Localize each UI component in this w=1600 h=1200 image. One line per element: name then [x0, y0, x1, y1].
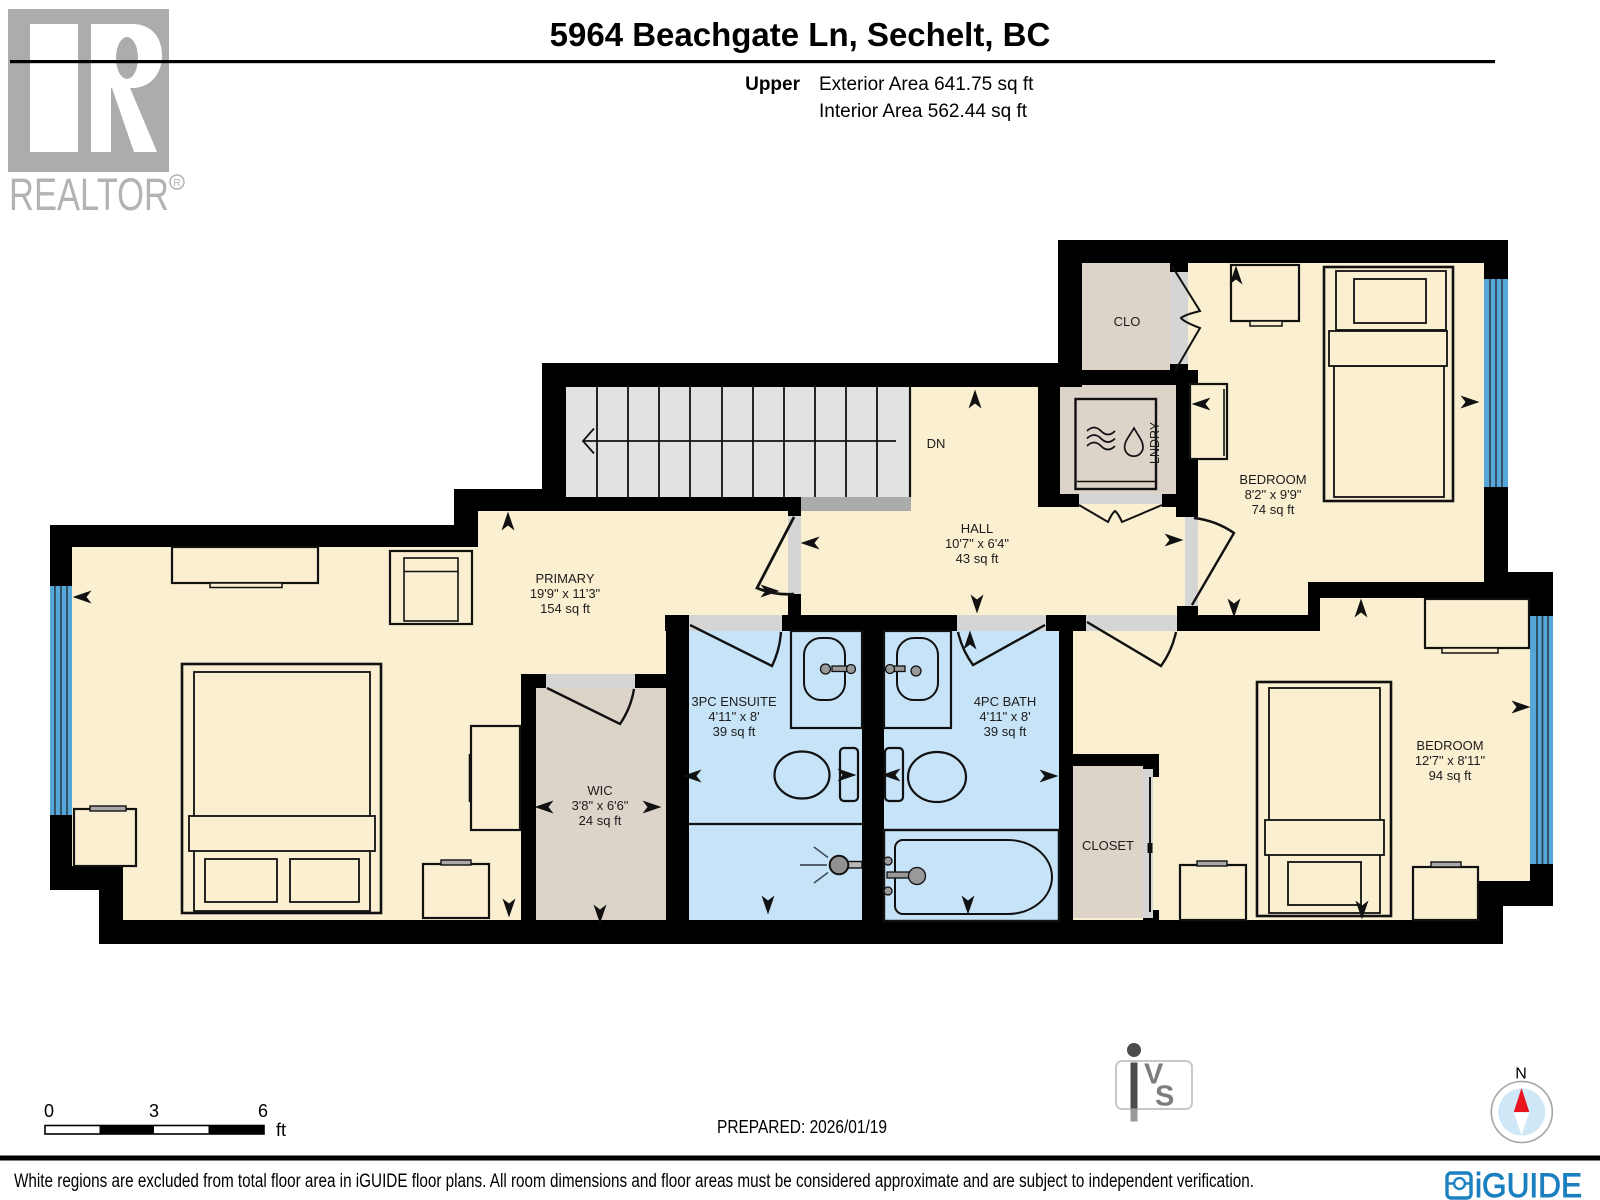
svg-text:BEDROOM: BEDROOM [1239, 472, 1306, 487]
svg-text:LNDRY: LNDRY [1148, 421, 1162, 464]
svg-text:White regions are excluded fro: White regions are excluded from total fl… [14, 1171, 1254, 1192]
svg-text:3'8" x 6'6": 3'8" x 6'6" [572, 798, 629, 813]
svg-text:WIC: WIC [587, 783, 612, 798]
svg-text:iGUIDE: iGUIDE [1475, 1167, 1582, 1200]
svg-text:12'7" x 8'11": 12'7" x 8'11" [1415, 753, 1486, 768]
svg-text:Exterior Area 641.75 sq ft: Exterior Area 641.75 sq ft [819, 74, 1034, 95]
svg-text:43 sq ft: 43 sq ft [956, 551, 999, 566]
svg-text:8'2" x 9'9": 8'2" x 9'9" [1245, 487, 1302, 502]
svg-text:3PC ENSUITE: 3PC ENSUITE [691, 694, 777, 709]
svg-text:HALL: HALL [961, 521, 994, 536]
svg-text:19'9" x 11'3": 19'9" x 11'3" [530, 586, 601, 601]
svg-text:4'11" x 8': 4'11" x 8' [708, 709, 759, 724]
svg-text:6: 6 [258, 1101, 268, 1121]
svg-text:4PC BATH: 4PC BATH [974, 694, 1037, 709]
svg-text:Interior Area 562.44 sq ft: Interior Area 562.44 sq ft [819, 101, 1028, 122]
svg-text:24 sq ft: 24 sq ft [579, 813, 622, 828]
svg-text:Upper: Upper [745, 74, 801, 95]
svg-text:74 sq ft: 74 sq ft [1252, 502, 1295, 517]
svg-text:CLO: CLO [1114, 314, 1141, 329]
svg-text:39 sq ft: 39 sq ft [713, 724, 756, 739]
svg-text:154 sq ft: 154 sq ft [540, 601, 590, 616]
svg-text:94 sq ft: 94 sq ft [1429, 768, 1472, 783]
svg-text:R: R [173, 178, 180, 189]
svg-text:5964 Beachgate Ln, Sechelt, BC: 5964 Beachgate Ln, Sechelt, BC [550, 16, 1051, 53]
svg-text:10'7" x 6'4": 10'7" x 6'4" [945, 536, 1009, 551]
svg-text:PREPARED: 2026/01/19: PREPARED: 2026/01/19 [717, 1117, 887, 1137]
svg-text:3: 3 [149, 1101, 159, 1121]
svg-text:BEDROOM: BEDROOM [1416, 738, 1483, 753]
svg-text:DN: DN [927, 436, 946, 451]
svg-text:ft: ft [276, 1120, 286, 1140]
svg-text:N: N [1515, 1066, 1527, 1083]
svg-text:0: 0 [44, 1101, 54, 1121]
svg-text:PRIMARY: PRIMARY [536, 571, 595, 586]
svg-text:39 sq ft: 39 sq ft [984, 724, 1027, 739]
svg-text:4'11" x 8': 4'11" x 8' [979, 709, 1030, 724]
svg-text:REALTOR: REALTOR [9, 169, 169, 220]
svg-text:CLOSET: CLOSET [1082, 838, 1134, 853]
svg-text:S: S [1155, 1081, 1174, 1113]
